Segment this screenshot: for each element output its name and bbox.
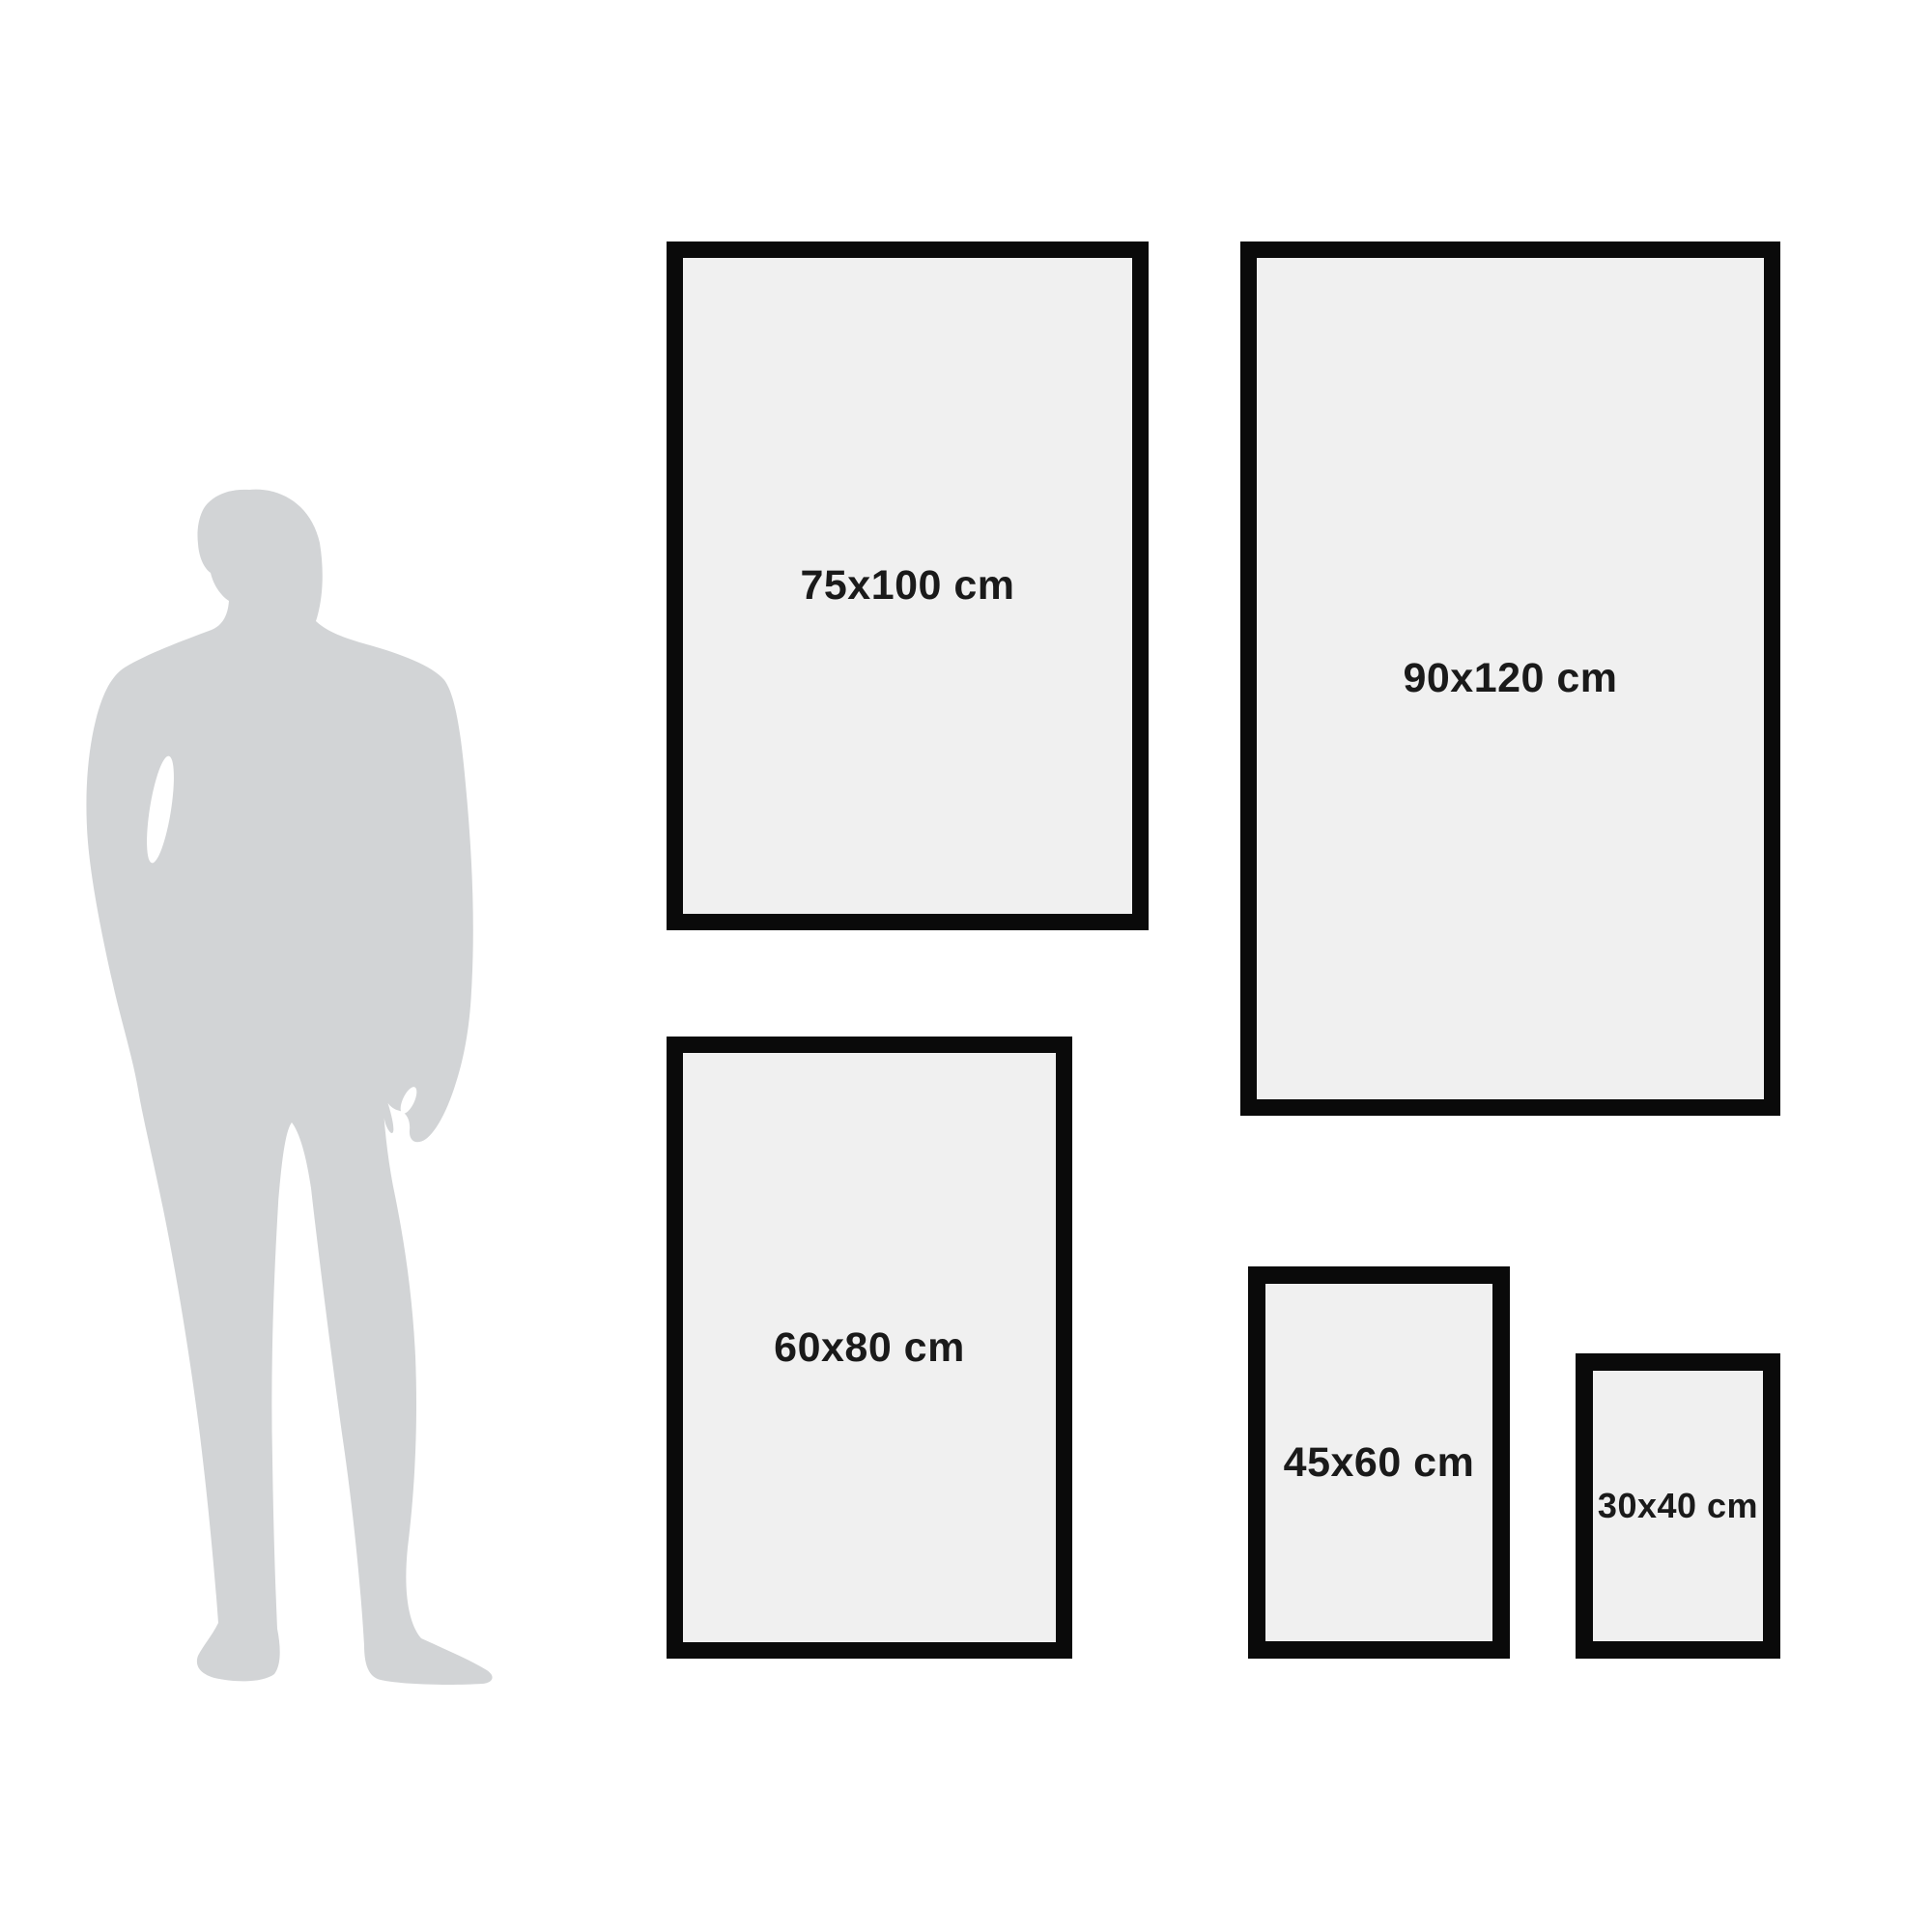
frame-size-label: 90x120 cm (1403, 655, 1617, 702)
poster-size-comparison-diagram: 75x100 cm 90x120 cm 60x80 cm 45x60 cm 30… (0, 0, 1932, 1932)
frame-60x80: 60x80 cm (667, 1037, 1072, 1659)
frame-30x40: 30x40 cm (1576, 1353, 1780, 1659)
frame-75x100: 75x100 cm (667, 241, 1149, 930)
frame-size-label: 60x80 cm (774, 1324, 965, 1372)
frame-size-label: 30x40 cm (1598, 1486, 1758, 1526)
frame-size-label: 75x100 cm (800, 562, 1014, 610)
frame-size-label: 45x60 cm (1284, 1439, 1475, 1487)
frame-90x120: 90x120 cm (1240, 241, 1780, 1116)
frame-45x60: 45x60 cm (1248, 1266, 1510, 1659)
